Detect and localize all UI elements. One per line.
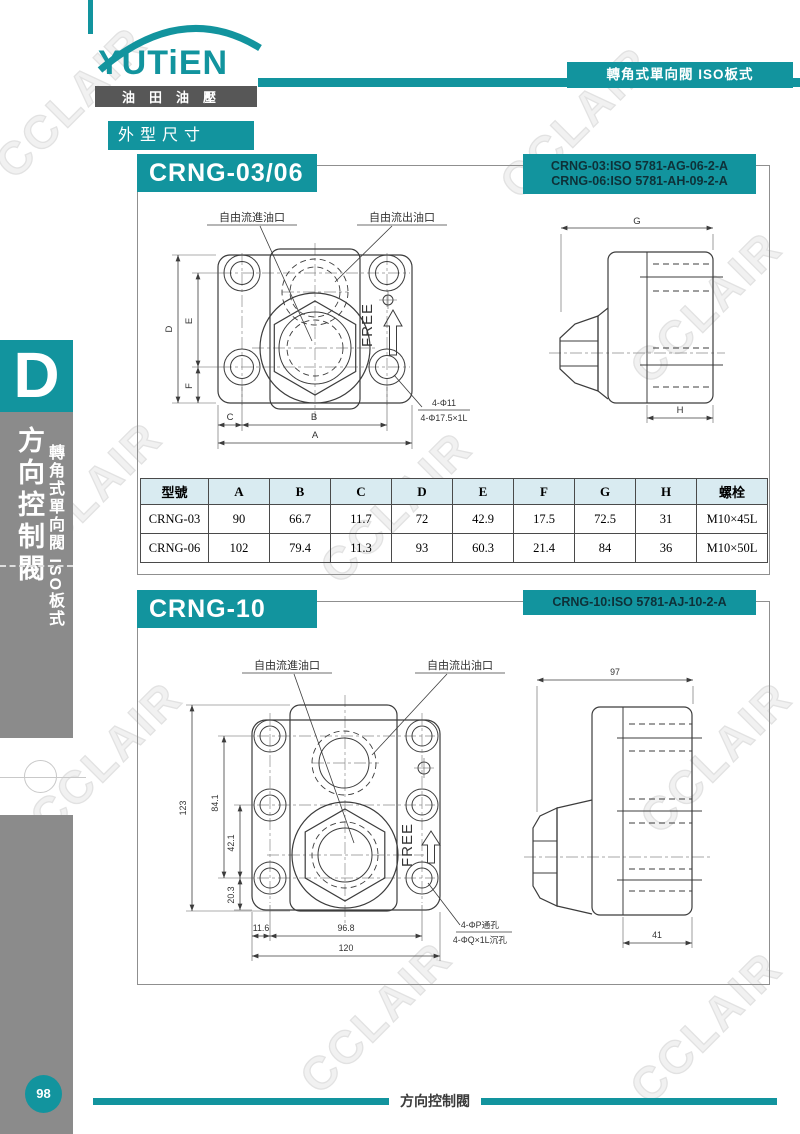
sidebar-divider (0, 565, 73, 567)
locating-pin-icon (379, 291, 397, 309)
brand-logo: YUTiEN (98, 44, 228, 83)
dim-label-g: G (633, 216, 640, 227)
outlet-port-label: 自由流出油口 (369, 210, 435, 224)
table-cell: 66.7 (270, 505, 331, 534)
table-cell: 42.9 (453, 505, 514, 534)
locating-pin-icon (414, 758, 434, 778)
crng0306-side-view-drawing: G H (545, 212, 775, 432)
iso-code-line: CRNG-10:ISO 5781-AJ-10-2-A (523, 595, 756, 610)
table-header-cell: G (575, 479, 636, 505)
outlet-port-label: 自由流出油口 (427, 658, 493, 672)
table-header-cell: C (331, 479, 392, 505)
table-cell: M10×50L (697, 534, 768, 563)
page-number-badge: 98 (25, 1075, 62, 1113)
footer-rule-left (93, 1098, 389, 1105)
table-cell: 11.7 (331, 505, 392, 534)
iso-code-box: CRNG-03:ISO 5781-AG-06-2-A CRNG-06:ISO 5… (523, 154, 756, 194)
crng10-side-view-drawing: 97 41 (522, 652, 762, 962)
table-header-cell: H (636, 479, 697, 505)
table-cell: 21.4 (514, 534, 575, 563)
dim-label-41: 41 (652, 930, 662, 940)
table-cell: 72 (392, 505, 453, 534)
crng0306-front-view-drawing: FREE 自由流進油口 自由流出油口 D E F C B (160, 205, 480, 465)
dim-label-e: E (184, 318, 195, 324)
dim-label-97: 97 (610, 667, 620, 677)
free-flow-label: FREE (359, 303, 376, 347)
table-header-cell: D (392, 479, 453, 505)
dim-label-84-1: 84.1 (210, 794, 220, 811)
brand-sub-text: 油田油壓 (122, 87, 230, 106)
table-cell: 84 (575, 534, 636, 563)
table-header-cell: A (209, 479, 270, 505)
free-arrow-icon (422, 831, 440, 863)
section-title: CRNG-10 (137, 590, 317, 628)
dim-label-42-1: 42.1 (226, 834, 236, 851)
sidebar-upper: 方向控制閥 轉角式單向閥 ISO板式 (0, 412, 73, 738)
table-cell: CRNG-03 (141, 505, 209, 534)
table-row: CRNG-06 102 79.4 11.3 93 60.3 21.4 84 36… (141, 534, 768, 563)
footer-label: 方向控制閥 (389, 1091, 481, 1111)
free-flow-label: FREE (399, 823, 416, 867)
dim-label-c: C (227, 412, 234, 423)
table-header-cell: 螺栓 (697, 479, 768, 505)
table-cell: 102 (209, 534, 270, 563)
dim-label-11-6: 11.6 (253, 923, 270, 933)
table-cell: 72.5 (575, 505, 636, 534)
hole-note-2: 4-ΦQ×1L沉孔 (453, 935, 507, 945)
sidebar-gap-circle (24, 760, 57, 793)
dimension-table: 型號 A B C D E F G H 螺栓 CRNG-03 90 66.7 11… (140, 478, 768, 563)
brand-sub-label: 油田油壓 (95, 86, 257, 107)
page-section-label: 外型尺寸 (108, 121, 254, 150)
hole-note-2: 4-Φ17.5×1L (421, 413, 468, 423)
dim-label-b: B (311, 412, 317, 423)
table-cell: 11.3 (331, 534, 392, 563)
section-crng-10: CRNG-10 CRNG-10:ISO 5781-AJ-10-2-A (137, 590, 770, 985)
table-header-cell: 型號 (141, 479, 209, 505)
iso-code-line: CRNG-03:ISO 5781-AG-06-2-A (523, 159, 756, 174)
dim-label-96-8: 96.8 (337, 923, 354, 933)
iso-code-line: CRNG-06:ISO 5781-AH-09-2-A (523, 174, 756, 189)
sidebar-letter-d: D (0, 340, 73, 412)
table-header-cell: B (270, 479, 331, 505)
table-cell: 79.4 (270, 534, 331, 563)
table-cell: M10×45L (697, 505, 768, 534)
hole-note-1: 4-ΦP通孔 (461, 920, 500, 930)
table-cell: 31 (636, 505, 697, 534)
dim-label-f: F (184, 383, 195, 389)
table-header-row: 型號 A B C D E F G H 螺栓 (141, 479, 768, 505)
table-row: CRNG-03 90 66.7 11.7 72 42.9 17.5 72.5 3… (141, 505, 768, 534)
table-cell: CRNG-06 (141, 534, 209, 563)
hole-note-1: 4-Φ11 (432, 398, 456, 408)
crng10-front-view-drawing: FREE 自由流進油口 自由流出油口 123 84.1 42.1 20.3 11… (172, 653, 517, 973)
table-cell: 93 (392, 534, 453, 563)
sidebar-subtitle: 轉角式單向閥 ISO板式 (42, 444, 66, 628)
table-cell: 90 (209, 505, 270, 534)
table-cell: 36 (636, 534, 697, 563)
header-category-tag: 轉角式單向閥 ISO板式 (567, 62, 793, 88)
dim-label-d: D (164, 325, 175, 332)
dim-label-123: 123 (178, 801, 188, 816)
iso-code-box: CRNG-10:ISO 5781-AJ-10-2-A (523, 590, 756, 615)
dim-label-120: 120 (339, 943, 354, 953)
section-crng-03-06: CRNG-03/06 CRNG-03:ISO 5781-AG-06-2-A CR… (137, 154, 770, 575)
table-header-cell: E (453, 479, 514, 505)
inlet-port-label: 自由流進油口 (219, 210, 285, 224)
table-cell: 60.3 (453, 534, 514, 563)
dim-label-a: A (312, 430, 319, 441)
table-cell: 17.5 (514, 505, 575, 534)
footer-rule-right (481, 1098, 777, 1105)
table-header-cell: F (514, 479, 575, 505)
section-title: CRNG-03/06 (137, 154, 317, 192)
dim-label-h: H (677, 405, 684, 416)
dim-label-20-3: 20.3 (226, 886, 236, 903)
inlet-port-label: 自由流進油口 (254, 658, 320, 672)
